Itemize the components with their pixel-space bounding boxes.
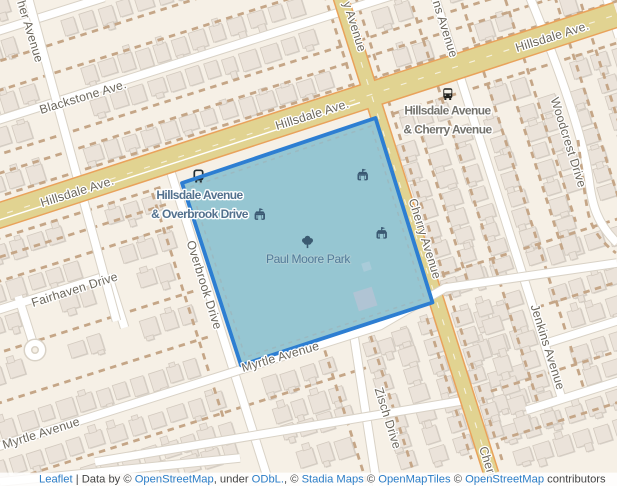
svg-text:& Cherry Avenue: & Cherry Avenue [403, 122, 492, 136]
svg-text:& Overbrook Drive: & Overbrook Drive [151, 207, 249, 221]
svg-text:Paul Moore Park: Paul Moore Park [266, 252, 351, 266]
svg-text:Leaflet | Data by © OpenStreet: Leaflet | Data by © OpenStreetMap, under… [39, 474, 606, 486]
svg-text:Hillsdale Avenue: Hillsdale Avenue [404, 104, 491, 118]
svg-text:Hillsdale Avenue: Hillsdale Avenue [156, 188, 243, 202]
